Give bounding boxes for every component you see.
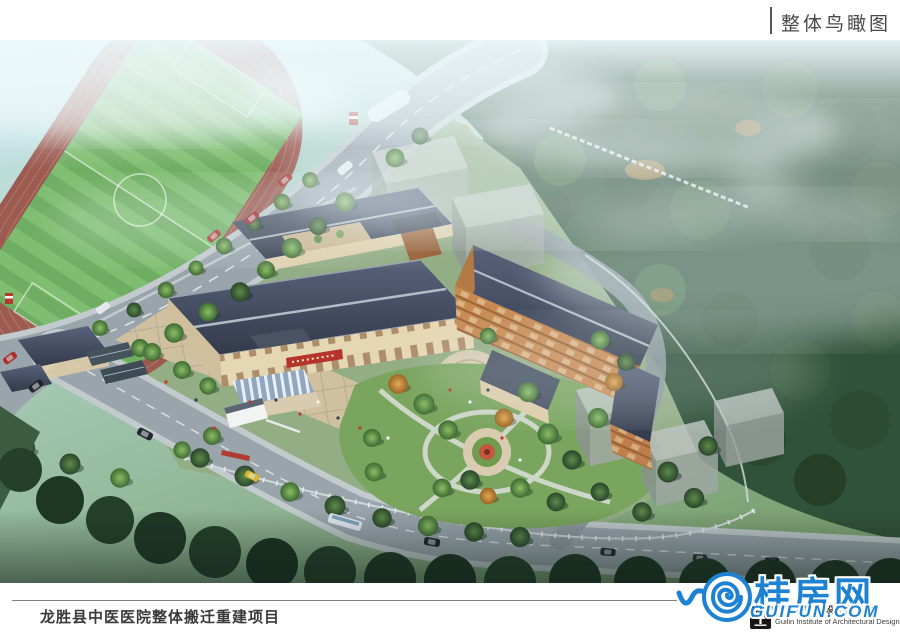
project-title: 龙胜县中医医院整体搬迁重建项目 [40,606,280,627]
tree-logo-icon [750,606,771,629]
aerial-rendering [0,40,900,583]
designer-name-en: Guilin Institute of Architectural Design [775,618,900,626]
header-divider [770,7,772,34]
rendering-scene [0,40,900,583]
designer-name-cn: 桂林市建筑设计研究院 [775,606,900,616]
page-title: 整体鸟瞰图 [781,9,891,36]
header: 整体鸟瞰图 [0,0,900,40]
presentation-sheet: 整体鸟瞰图 [0,0,900,635]
designer-credit: 桂林市建筑设计研究院 Guilin Institute of Architect… [750,606,900,629]
footer-divider [12,600,677,601]
